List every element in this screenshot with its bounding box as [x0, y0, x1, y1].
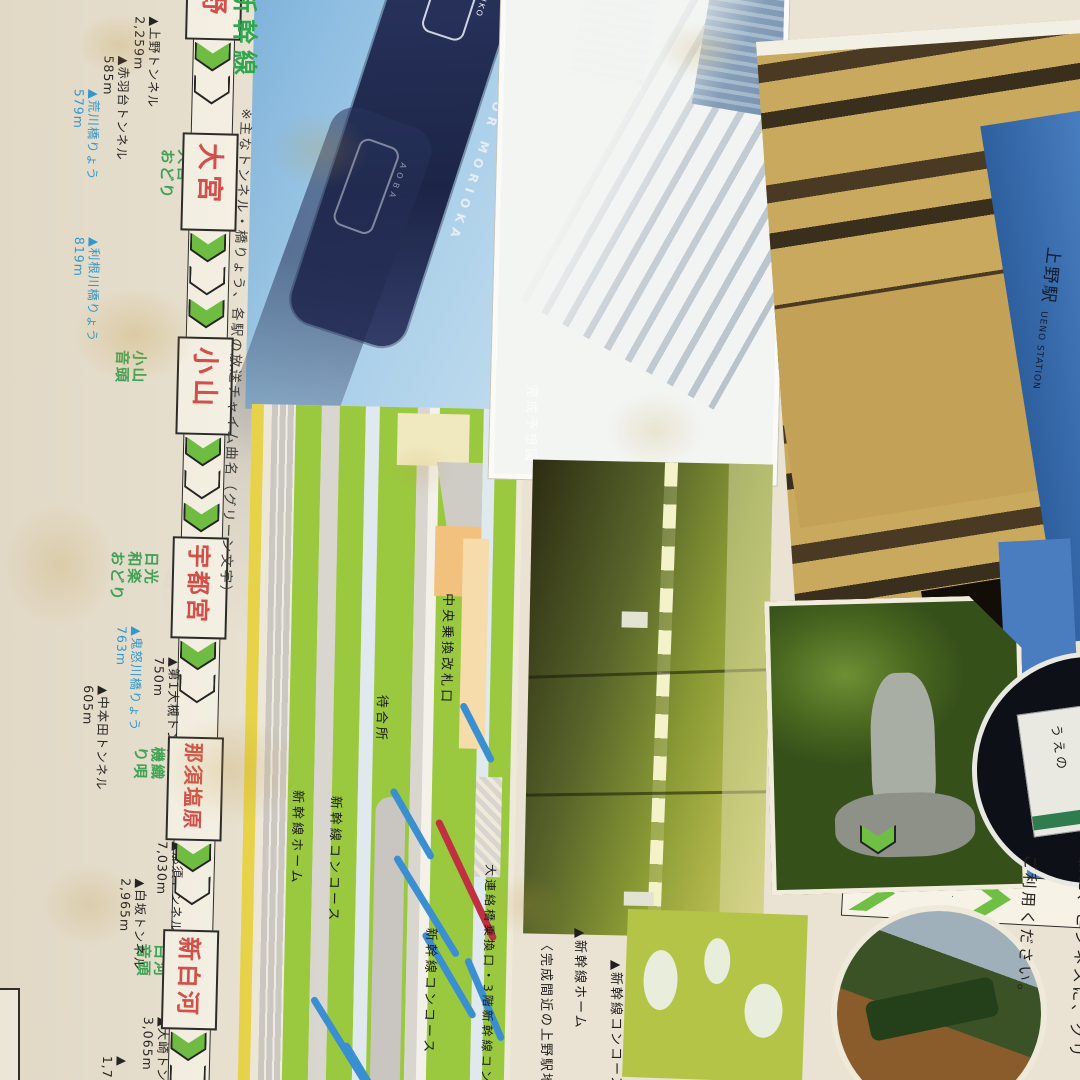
chime-song-oyama: 小山音頭: [78, 349, 181, 409]
caption-platform: ▲新幹線ホーム: [572, 928, 591, 1030]
message-text: 上野駅から東北・上越新 出発いたします。 みちのくへ…、えちごへ 旅に、ビジネス…: [973, 852, 1080, 1072]
feature-tonegawa-bridge: ▲利根川橋りょう819m: [40, 236, 133, 343]
route-chevron: [170, 1031, 207, 1062]
small-sign: [624, 892, 654, 907]
caption-concourse: ▲新幹線コンコース: [608, 960, 627, 1080]
platform-construction-photo: [523, 460, 773, 939]
brochure-photo: やまびこ YAMABIKO 盛岡 FOR MORIOKA あおば A O B A…: [0, 0, 1080, 1080]
pillar-blob: [642, 950, 678, 1011]
paper-sheet: やまびこ YAMABIKO 盛岡 FOR MORIOKA あおば A O B A…: [0, 0, 1080, 1080]
concourse-construction-photo: [622, 909, 808, 1080]
pillar-blob: [703, 938, 731, 985]
page-title-shinkansen: 新幹線: [228, 0, 264, 81]
route-chevron: [194, 42, 231, 73]
station-box-omiya: 大宮: [180, 132, 238, 231]
sign-green-bar: [1032, 807, 1080, 831]
station-box-nasushiobara: 那須塩原: [165, 736, 224, 841]
station-name: 新白河: [172, 936, 209, 1018]
route-chevron: [180, 640, 217, 671]
partial-box-left-edge: [0, 988, 20, 1080]
feature-arakawa-bridge: ▲荒川橋りょう579m: [40, 88, 132, 182]
route-chevron: [185, 437, 222, 468]
route-chevron: [189, 266, 226, 297]
caption-construction: 〈完成間近の上野駅地: [538, 938, 557, 1080]
small-sign: [621, 611, 647, 628]
aerial-caption: 完成予想図: [522, 384, 543, 464]
route-chevron: [190, 233, 227, 264]
route-chevron: [174, 875, 211, 906]
station-name: 大宮: [192, 143, 233, 208]
feature-nakahonda-tunnel: ▲中本田トンネル605m: [49, 684, 142, 791]
statue-pedestal: [834, 791, 976, 859]
aerial-rendering-photo: 完成予想図: [489, 0, 790, 486]
station-box-shinshirakawa: 新白河: [161, 929, 219, 1030]
ceiling-lights: [647, 462, 678, 936]
route-chevron: [179, 673, 216, 704]
route-chevron: [183, 503, 220, 534]
route-chevron: [169, 1064, 206, 1080]
chevron-down: [860, 825, 896, 855]
route-chevron: [188, 299, 225, 330]
pillar-blob: [744, 983, 784, 1038]
route-chevron: [184, 470, 221, 501]
route-chevron: [175, 842, 212, 873]
station-sign-text: うえの: [1048, 723, 1073, 773]
feature-partial-cut: ▲1,7: [69, 1055, 160, 1080]
route-chevron: [193, 75, 230, 106]
station-name: 宇都宮: [182, 544, 219, 626]
station-sign-board: うえの: [1017, 704, 1080, 837]
station-name: 小山: [187, 347, 228, 412]
station-name: 那須塩原: [179, 743, 210, 832]
